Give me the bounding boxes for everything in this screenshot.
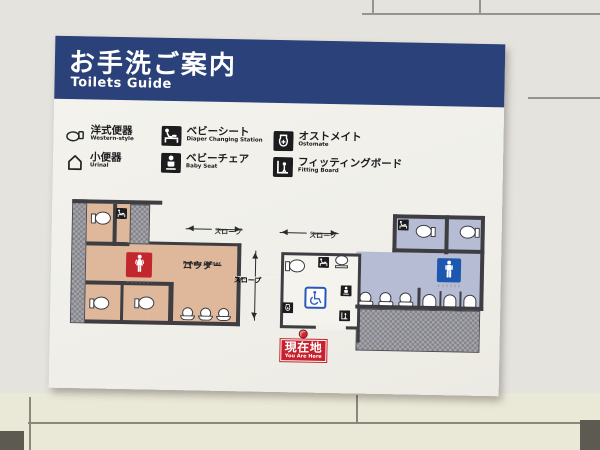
wheelchair-sign xyxy=(304,287,326,309)
washbasin-counter xyxy=(335,265,348,268)
stool xyxy=(216,308,231,322)
toilets-guide-sign: お手洗ご案内 Toilets Guide 洋式便器Western-style 小… xyxy=(49,36,506,397)
wall-tile-joint xyxy=(528,97,600,99)
floor-plan: パウダーコーナーPowder Corner スロープSlope スロープSlop… xyxy=(69,199,486,375)
fitting-board-icon xyxy=(273,157,293,177)
legend-label-en: Diaper Changing Station xyxy=(186,137,262,144)
urinal-partition xyxy=(417,288,420,310)
legend-label-en: Urinal xyxy=(90,163,122,169)
braille-dots xyxy=(126,280,152,283)
baby-seat-icon xyxy=(340,285,351,296)
diaper-changing-icon xyxy=(398,219,409,230)
legend-item-baby-seat: ベビーチェアBaby Seat xyxy=(161,153,249,175)
accessible-room-door xyxy=(316,325,346,331)
photo-scene: お手洗ご案内 Toilets Guide 洋式便器Western-style 小… xyxy=(0,0,600,450)
wall xyxy=(86,241,129,246)
sign-title-en: Toilets Guide xyxy=(70,75,172,92)
urinal-partition xyxy=(459,292,461,311)
urinal-fixture xyxy=(422,294,436,307)
wall-tile-joint xyxy=(29,397,31,450)
toilet-fixture xyxy=(285,259,305,272)
legend-item-western-style: 洋式便器Western-style xyxy=(65,125,134,146)
legend-label-en: Baby Seat xyxy=(186,164,249,171)
urinal-fixture xyxy=(443,294,456,307)
urinal-partition xyxy=(439,291,441,310)
baby-seat-icon xyxy=(161,153,181,173)
wall-corner-shadow xyxy=(580,420,600,450)
legend-label-en: Western-style xyxy=(90,136,133,143)
slope-arrow-horizontal: スロープSlope xyxy=(280,224,339,241)
sign-header: お手洗ご案内 Toilets Guide xyxy=(54,36,505,108)
toilet-fixture xyxy=(134,296,154,309)
urinal-icon xyxy=(65,152,85,172)
you-are-here-badge: 現在地 You Are Here xyxy=(279,338,327,363)
you-are-here-jp: 現在地 xyxy=(285,341,323,354)
legend-label-en: Ostomate xyxy=(298,142,361,149)
legend-item-diaper-station: ベビーシートDiaper Changing Station xyxy=(161,126,263,148)
toilet-fixture xyxy=(91,211,111,224)
washbasin-fixture xyxy=(335,255,348,265)
toilet-fixture xyxy=(460,226,480,239)
wall xyxy=(357,330,360,343)
washbasin-fixture xyxy=(378,292,393,307)
diaper-changing-icon xyxy=(318,257,329,268)
wall-tile-joint xyxy=(362,13,600,15)
hatched-wall xyxy=(355,309,480,353)
hatched-wall xyxy=(70,199,87,323)
wall-tile-joint xyxy=(372,0,374,14)
ostomate-icon xyxy=(282,302,293,313)
slope-arrow-vertical: スロープSlope xyxy=(240,250,271,321)
ostomate-icon xyxy=(273,131,293,151)
stool xyxy=(198,308,213,322)
washbasin-fixture xyxy=(398,292,413,307)
wall xyxy=(479,216,485,311)
legend-label-en: Fitting Board xyxy=(298,168,402,176)
wall xyxy=(168,284,174,323)
urinal-fixture xyxy=(463,295,476,308)
wall-corner-shadow xyxy=(0,431,24,450)
braille-dots xyxy=(437,284,461,287)
current-location-pin xyxy=(299,329,308,338)
wall-tile-joint xyxy=(28,422,600,424)
toilet-fixture xyxy=(89,296,109,309)
legend-item-fitting-board: フィッティングボードFitting Board xyxy=(273,157,403,179)
diaper-changing-icon xyxy=(116,208,127,219)
wall xyxy=(392,214,397,252)
wall-tile-joint xyxy=(479,0,481,14)
toilet-fixture xyxy=(416,225,436,238)
slope-arrow-horizontal: スロープSlope xyxy=(186,220,243,237)
mens-room-sign xyxy=(437,258,461,282)
you-are-here-en: You Are Here xyxy=(285,353,322,361)
wall-tile-joint xyxy=(356,395,358,423)
hatched-wall xyxy=(129,204,150,244)
fitting-board-icon xyxy=(339,310,350,321)
stool xyxy=(180,307,195,321)
western-toilet-icon xyxy=(65,125,85,145)
womens-room-sign xyxy=(126,252,152,277)
legend-item-urinal: 小便器Urinal xyxy=(65,152,122,173)
washbasin-fixture xyxy=(358,292,373,307)
diaper-changing-icon xyxy=(161,126,181,146)
legend-item-ostomate: オストメイトOstomate xyxy=(273,131,361,153)
